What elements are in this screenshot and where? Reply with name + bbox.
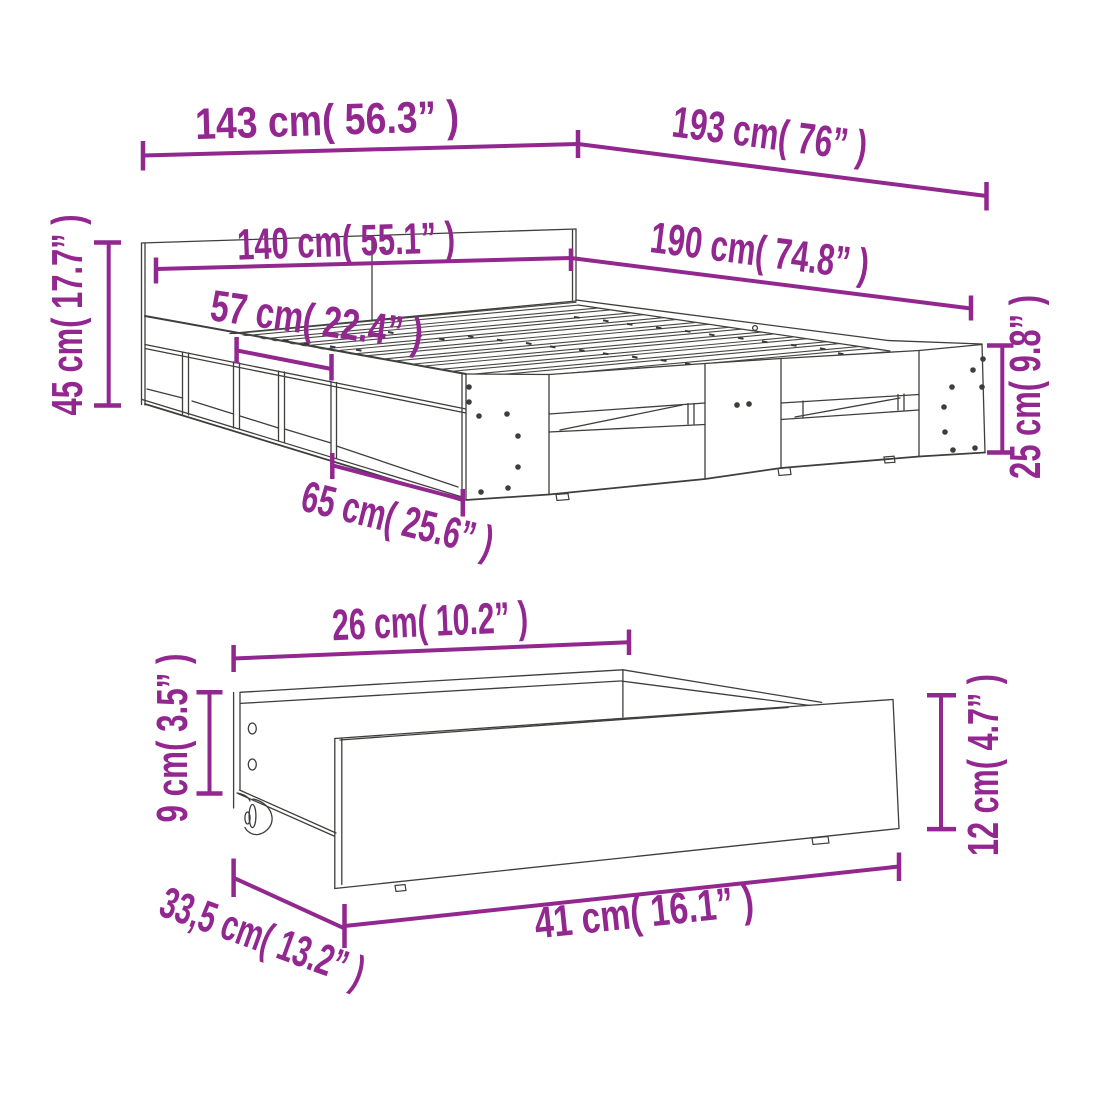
svg-text:25 cm( 9.8” ): 25 cm( 9.8” ) [1001,295,1050,479]
svg-text:12 cm( 4.7” ): 12 cm( 4.7” ) [959,674,1008,856]
svg-text:143 cm( 56.3” ): 143 cm( 56.3” ) [194,92,459,149]
svg-text:9 cm( 3.5” ): 9 cm( 3.5” ) [148,654,197,823]
svg-text:45 cm( 17.7” ): 45 cm( 17.7” ) [43,215,92,416]
svg-text:26 cm( 10.2” ): 26 cm( 10.2” ) [331,593,529,651]
svg-text:140 cm( 55.1” ): 140 cm( 55.1” ) [236,213,456,270]
